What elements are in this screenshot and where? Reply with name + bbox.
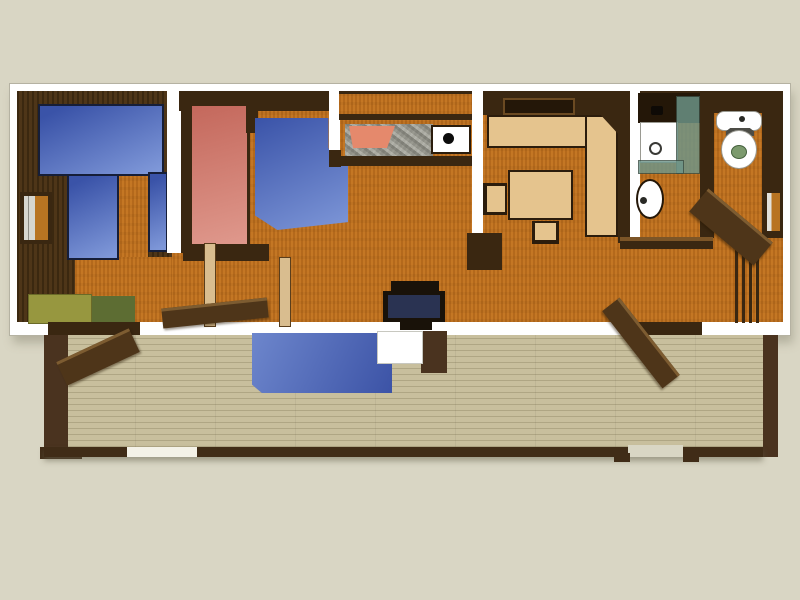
toilet-tank-button [739, 116, 745, 122]
deck-rail-foot-b [683, 453, 699, 462]
chair-left [483, 183, 507, 215]
kitchen-counter-edge [339, 156, 473, 166]
tv-base [400, 320, 432, 330]
deck-table [377, 331, 423, 364]
deck-rail-foot-a [614, 453, 630, 462]
single-bed-blue [67, 174, 119, 260]
corner-bench-right [585, 115, 618, 237]
shower-glass-bottom [638, 160, 684, 174]
floorplan-image [0, 0, 800, 600]
shower-head [651, 106, 663, 115]
deck-left-frame [44, 335, 68, 453]
window-left-wall [20, 192, 52, 244]
dining-window [503, 98, 575, 115]
vanity-drain [640, 197, 647, 204]
hall-wall [620, 237, 713, 249]
window-right-wall [764, 190, 783, 234]
shower-drain [649, 142, 662, 155]
kitchen-upper-cabinets [339, 91, 472, 120]
deck-right-frame [763, 335, 778, 457]
blue-side-piece [148, 172, 168, 252]
door-leaf-2 [279, 257, 291, 327]
window-left-mullion [28, 196, 29, 240]
double-bed-blue [38, 104, 164, 176]
chair-bottom [532, 221, 559, 244]
dining-table [508, 170, 573, 220]
floor-mat-olive [28, 294, 92, 324]
deck-mat-blue [252, 333, 392, 393]
deck-rail-gap-2 [628, 445, 683, 457]
red-bed-footboard [183, 244, 269, 261]
toilet-bowl-inner [731, 145, 747, 159]
single-bed-red [189, 103, 250, 252]
tv-body [383, 291, 445, 322]
appliance-cabinet [467, 233, 502, 270]
tv-screen [388, 295, 440, 318]
wall-3 [472, 91, 483, 233]
deck-rail-gap-1 [127, 447, 197, 457]
kitchen-faucet [443, 133, 454, 144]
deck-dark-piece [421, 331, 447, 373]
floor-mat-olive-dark [92, 296, 135, 324]
wall-1 [167, 91, 181, 253]
